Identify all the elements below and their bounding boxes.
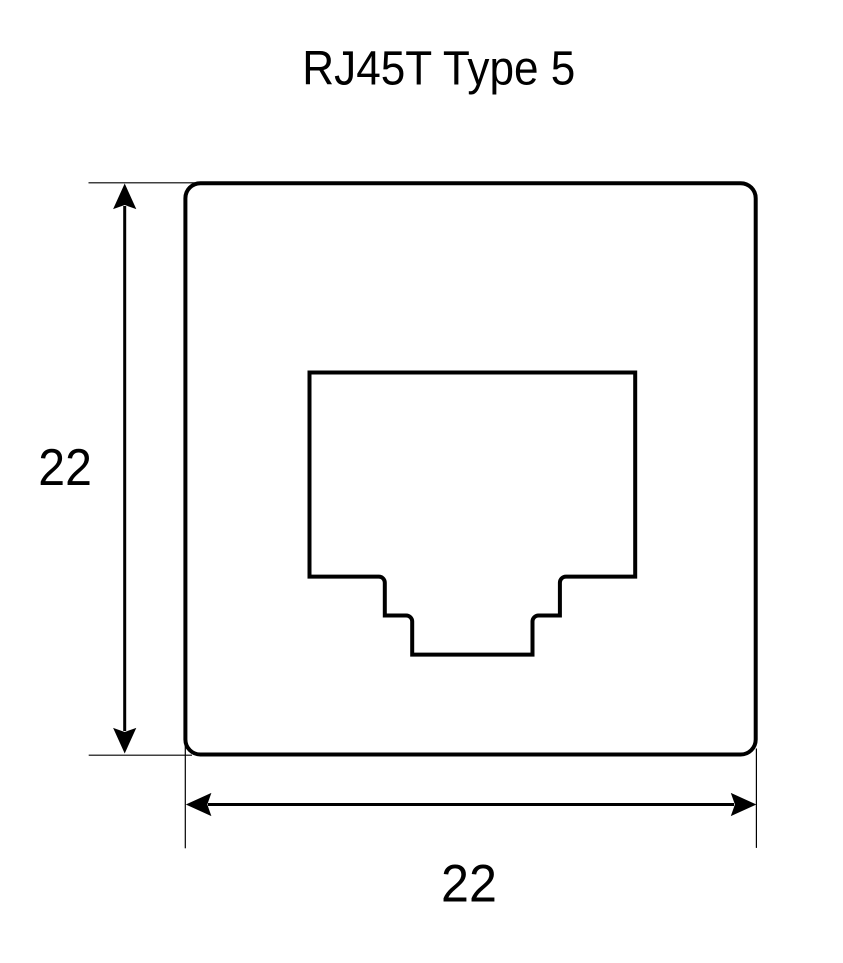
svg-text:22: 22 — [38, 438, 92, 496]
svg-text:RJ45T Type 5: RJ45T Type 5 — [302, 43, 575, 96]
svg-text:22: 22 — [441, 854, 497, 913]
